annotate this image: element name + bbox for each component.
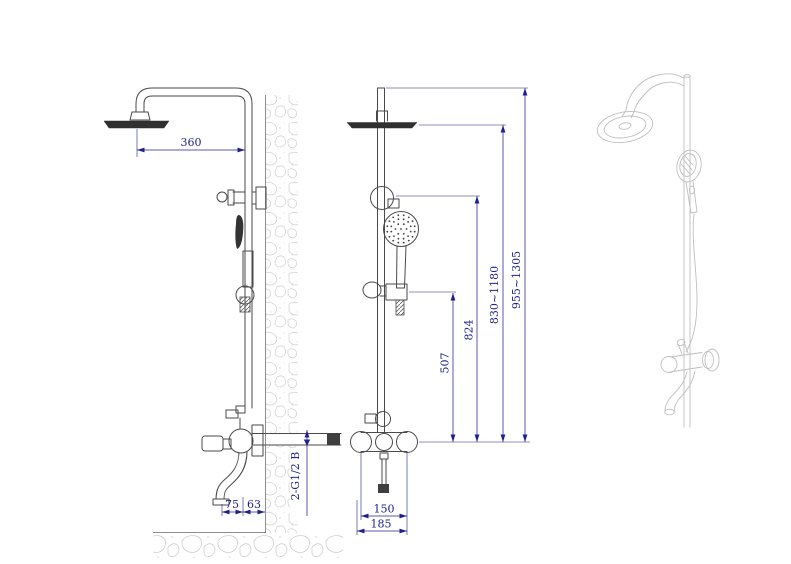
riser-pipe-3d <box>684 75 690 427</box>
dim-label-150: 150 <box>374 503 395 516</box>
wall-bracket-side <box>217 187 266 209</box>
hand-shower-front <box>384 212 419 289</box>
riser-pipe-front <box>378 88 385 432</box>
mixer-right-cap <box>397 432 418 453</box>
rain-shower-head-front <box>347 111 417 128</box>
floor-hatch <box>153 533 343 561</box>
rain-shower-head-3d <box>595 107 655 146</box>
spout-outlet-3d <box>665 409 675 415</box>
dim-label-955-1305: 955~1305 <box>510 251 523 309</box>
dim-label-75: 75 <box>225 498 239 511</box>
hand-shower-hose-3d <box>686 214 697 352</box>
hand-shower-3d <box>674 148 704 213</box>
inlet-pipe-section <box>327 433 340 445</box>
front-view: 507 824 830~1180 955~1305 150 185 <box>347 88 530 535</box>
escutcheon-side <box>252 425 263 456</box>
bracket-knob-side <box>217 192 227 202</box>
dim-75-63: 75 63 <box>222 497 265 516</box>
dim-830-1180: 830~1180 <box>488 125 503 442</box>
dim-955-1305: 955~1305 <box>510 88 525 442</box>
technical-drawing-page: 360 75 63 2-G1/2 B <box>0 0 791 564</box>
head-stem-side <box>130 112 150 120</box>
dim-label-830-1180: 830~1180 <box>488 266 501 324</box>
dim-185: 185 <box>357 518 407 532</box>
dim-label-inlet-thread: 2-G1/2 B <box>289 452 302 501</box>
hand-shower-side <box>235 215 243 249</box>
dim-label-360: 360 <box>181 136 202 149</box>
dim-label-185: 185 <box>371 518 392 531</box>
perspective-view <box>595 74 719 427</box>
wall-section <box>153 95 343 561</box>
mixer-handle-front <box>378 484 389 493</box>
mixer-body-side <box>229 429 253 453</box>
mixer-handle-side <box>202 436 223 451</box>
hand-shower-handle-front <box>397 246 407 288</box>
mixer-left-cap <box>351 432 372 453</box>
dim-label-824: 824 <box>463 320 476 341</box>
spray-nozzle-dots <box>386 214 415 243</box>
dim-label-63: 63 <box>247 498 261 511</box>
shower-technical-drawing: 360 75 63 2-G1/2 B <box>0 0 791 564</box>
dim-150: 150 <box>361 503 407 517</box>
dim-507: 507 <box>439 293 454 442</box>
side-view: 360 75 63 2-G1/2 B <box>104 88 341 520</box>
dim-360: 360 <box>137 129 245 157</box>
dim-label-507: 507 <box>439 353 452 374</box>
mixer-cartridge-front <box>376 434 393 451</box>
rain-shower-head-side <box>104 121 169 128</box>
extension-lines-front <box>357 88 530 535</box>
dim-824: 824 <box>463 196 478 442</box>
